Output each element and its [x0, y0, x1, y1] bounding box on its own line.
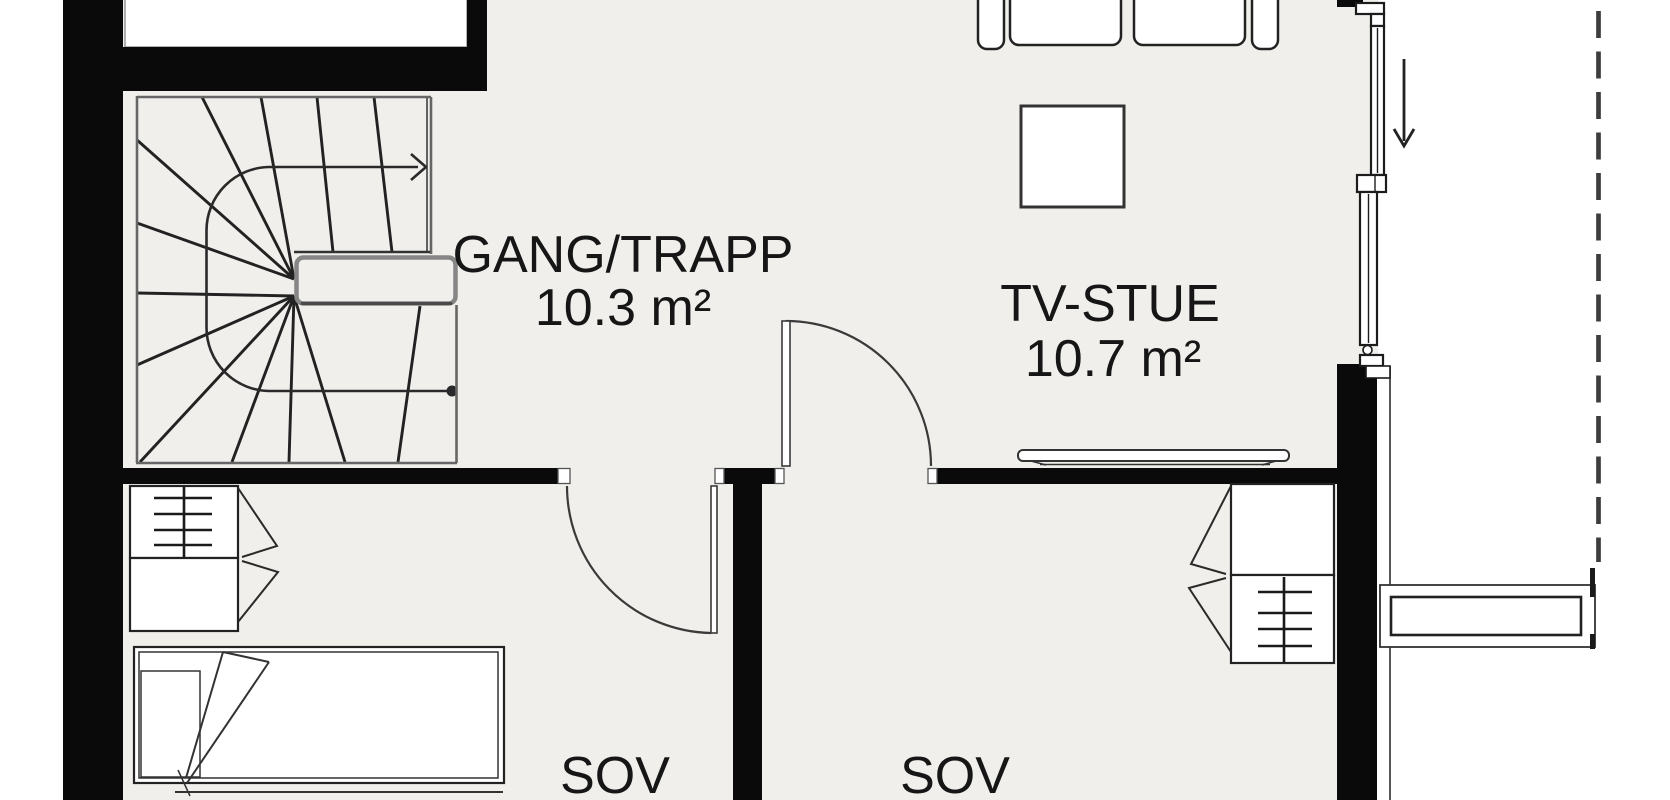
- svg-text:10.7 m²: 10.7 m²: [1025, 330, 1201, 388]
- svg-text:SOV: SOV: [560, 747, 670, 800]
- svg-text:10.3 m²: 10.3 m²: [535, 279, 711, 337]
- svg-text:GANG/TRAPP: GANG/TRAPP: [453, 226, 794, 284]
- svg-text:TV-STUE: TV-STUE: [1000, 275, 1220, 333]
- svg-text:SOV: SOV: [900, 747, 1010, 800]
